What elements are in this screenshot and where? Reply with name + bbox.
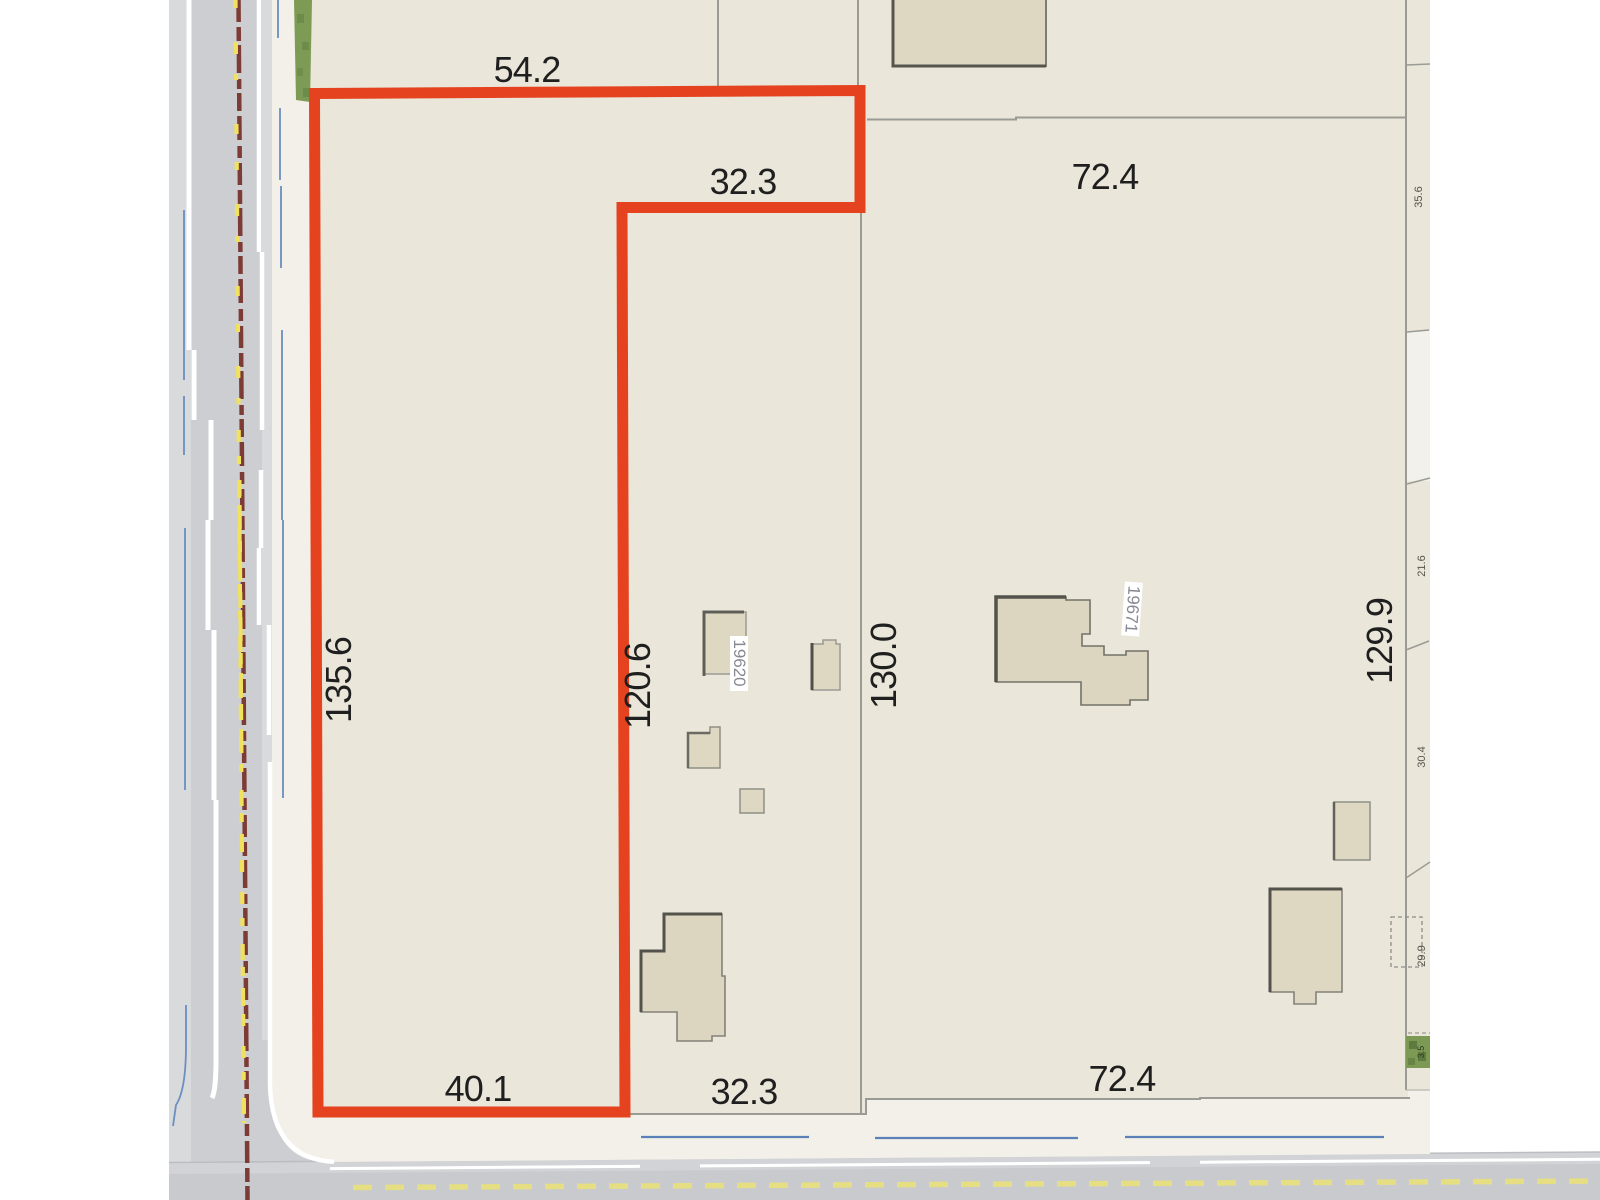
svg-text:135.6: 135.6 (318, 637, 359, 723)
svg-text:35.6: 35.6 (1413, 186, 1425, 207)
svg-text:40.1: 40.1 (445, 1068, 512, 1109)
svg-text:21.6: 21.6 (1416, 555, 1428, 576)
svg-text:19620: 19620 (730, 639, 749, 686)
svg-text:72.4: 72.4 (1072, 156, 1139, 197)
svg-text:120.6: 120.6 (617, 643, 658, 729)
svg-text:130.0: 130.0 (863, 623, 904, 709)
svg-text:129.9: 129.9 (1359, 598, 1400, 684)
svg-text:32.3: 32.3 (711, 1071, 778, 1112)
svg-text:72.4: 72.4 (1089, 1058, 1156, 1099)
svg-text:29.9: 29.9 (1416, 945, 1428, 966)
svg-text:30.4: 30.4 (1416, 746, 1428, 767)
svg-text:54.2: 54.2 (494, 49, 561, 90)
svg-text:19671: 19671 (1121, 585, 1143, 633)
svg-text:3.5: 3.5 (1416, 1046, 1426, 1059)
svg-text:32.3: 32.3 (710, 161, 777, 202)
